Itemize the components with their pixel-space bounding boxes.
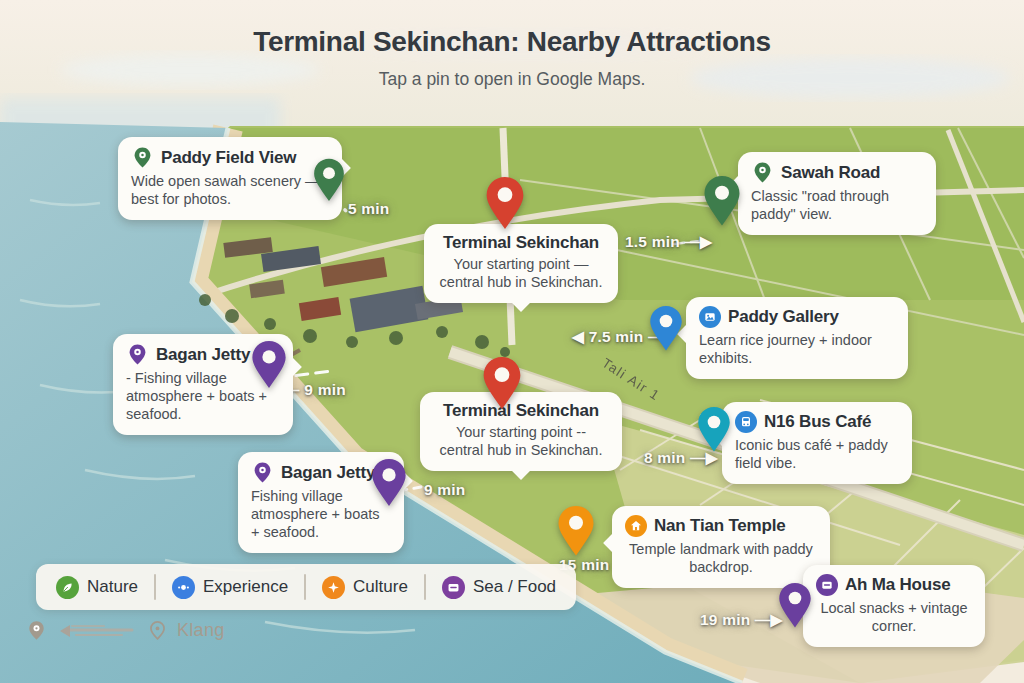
card-title: Nan Tian Temple (654, 516, 785, 536)
footer-attribution: Klang (26, 620, 225, 641)
legend-divider (154, 574, 156, 600)
legend-item-nature: Nature (56, 576, 138, 599)
card-tail (511, 292, 531, 312)
category-legend: Nature Experience Culture Sea / Food (36, 564, 576, 610)
card-ah-ma-house[interactable]: Ah Ma House Local snacks + vintage corne… (803, 565, 985, 647)
compass-dots-icon (172, 576, 195, 599)
card-title: Ah Ma House (845, 575, 950, 595)
legend-divider (304, 574, 306, 600)
storefront-card-icon (442, 576, 465, 599)
time-label-ah-ma-house: 19 min —▶ (700, 611, 783, 629)
card-body: Classic "road through paddy" view. (751, 188, 923, 224)
sparkle-icon (322, 576, 345, 599)
card-title: Sawah Road (781, 163, 880, 183)
map-pin-bagan-jetty-2[interactable] (370, 458, 408, 507)
map-pin-outline-icon (147, 620, 168, 641)
time-label-paddy-field-view: 5 min (348, 200, 389, 218)
card-title: Paddy Gallery (728, 307, 839, 327)
card-paddy-field-view[interactable]: Paddy Field View Wide open sawah scenery… (118, 137, 342, 220)
card-nan-tian-temple[interactable]: Nan Tian Temple Temple landmark with pad… (612, 506, 830, 588)
card-body: Learn rice journey + indoor exhibits. (699, 332, 895, 368)
card-body: Your starting point -- central hub in Se… (433, 424, 609, 460)
nan-tian-temple-house-icon (625, 515, 647, 537)
card-tail (511, 460, 531, 480)
time-label-bagan-jetty-2: 9 min (424, 481, 465, 499)
card-body: Temple landmark with paddy backdrop. (625, 541, 817, 577)
card-body: Your starting point — central hub in Sek… (437, 256, 605, 292)
bagan-jetty-pin-icon (126, 343, 149, 366)
legend-label: Sea / Food (473, 577, 556, 597)
map-pin-icon (26, 620, 47, 641)
card-title: Bagan Jetty (156, 345, 250, 365)
card-title: Paddy Field View (161, 148, 296, 168)
legend-divider (424, 574, 426, 600)
page-subtitle: Tap a pin to open in Google Maps. (0, 69, 1024, 90)
legend-item-sea-food: Sea / Food (442, 576, 556, 599)
card-sawah-road[interactable]: Sawah Road Classic "road through paddy" … (738, 152, 936, 235)
handwriting-scribble (56, 621, 138, 641)
sawah-road-pin-icon (751, 161, 774, 184)
card-title: Terminal Sekinchan (437, 233, 605, 253)
legend-label: Nature (87, 577, 138, 597)
map-pin-ah-ma-house[interactable] (777, 582, 813, 629)
map-pin-bagan-jetty-1[interactable] (250, 340, 288, 389)
time-label-sawah-road: 1.5 min —▶ (625, 233, 712, 251)
legend-label: Experience (203, 577, 288, 597)
ah-ma-house-shop-icon (816, 574, 838, 596)
map-pin-n16-bus-cafe[interactable] (696, 406, 732, 453)
card-body: Wide open sawah scenery — best for photo… (131, 173, 329, 209)
paddy-gallery-picture-icon (699, 306, 721, 328)
paddy-field-view-pin-icon (131, 146, 154, 169)
map-pin-sawah-road[interactable] (702, 175, 742, 227)
card-tail (603, 533, 623, 553)
card-title: Bagan Jetty (281, 463, 375, 483)
legend-item-experience: Experience (172, 576, 288, 599)
card-paddy-gallery[interactable]: Paddy Gallery Learn rice journey + indoo… (686, 297, 908, 379)
map-pin-nan-tian-temple[interactable] (556, 505, 596, 557)
n16-bus-icon (735, 411, 757, 433)
card-body: Local snacks + vintage corner. (816, 600, 972, 636)
bagan-jetty-pin-icon (251, 461, 274, 484)
map-pin-paddy-gallery[interactable] (648, 305, 684, 352)
card-n16-bus-cafe[interactable]: N16 Bus Café Iconic bus café + paddy fie… (722, 402, 912, 484)
page-title: Terminal Sekinchan: Nearby Attractions (0, 26, 1024, 58)
legend-label: Culture (353, 577, 408, 597)
card-body: Iconic bus café + paddy field vibe. (735, 437, 899, 473)
infographic-canvas: Terminal Sekinchan: Nearby Attractions T… (0, 0, 1024, 683)
map-pin-paddy-field-view[interactable] (312, 158, 346, 202)
leaf-icon (56, 576, 79, 599)
card-title: N16 Bus Café (764, 412, 871, 432)
map-pin-terminal-sekinchan-top[interactable] (484, 176, 526, 231)
legend-item-culture: Culture (322, 576, 408, 599)
map-pin-terminal-sekinchan-mid[interactable] (481, 356, 523, 411)
header: Terminal Sekinchan: Nearby Attractions T… (0, 0, 1024, 90)
card-terminal-sekinchan-top[interactable]: Terminal Sekinchan Your starting point —… (424, 224, 618, 303)
footer-place-label: Klang (177, 620, 225, 641)
